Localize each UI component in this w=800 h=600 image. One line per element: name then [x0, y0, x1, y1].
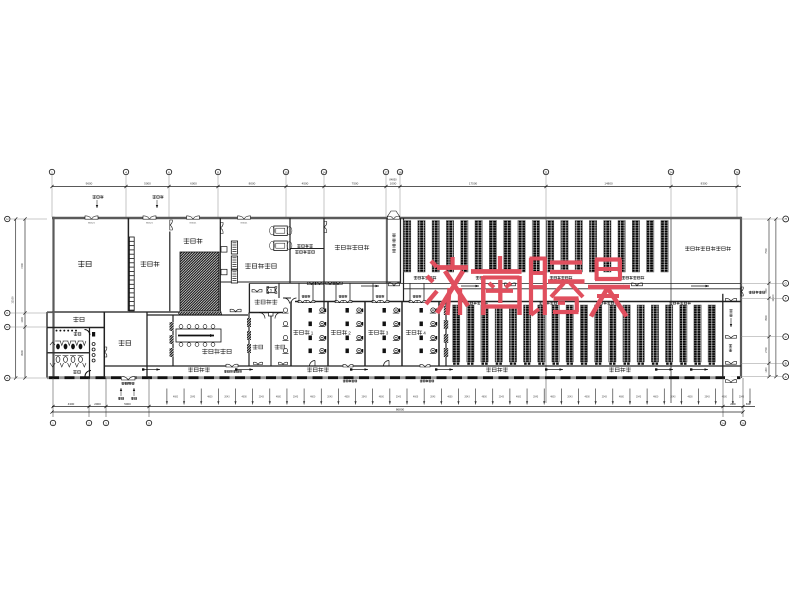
svg-text:9600: 9600 [86, 181, 93, 185]
svg-text:K: K [6, 311, 8, 315]
svg-text:4600: 4600 [379, 396, 385, 398]
svg-text:14800: 14800 [604, 181, 613, 185]
svg-text:26: 26 [735, 170, 739, 174]
svg-text:M1521: M1521 [146, 222, 153, 224]
svg-text:6000: 6000 [190, 181, 197, 185]
svg-text:2043: 2043 [327, 396, 333, 398]
svg-text:A: A [6, 376, 8, 380]
svg-text:86800: 86800 [396, 407, 405, 411]
svg-text:2043: 2043 [396, 396, 402, 398]
svg-text:2043: 2043 [362, 396, 368, 398]
svg-text:2: 2 [348, 330, 351, 335]
svg-text:H: H [785, 217, 787, 221]
svg-text:5000: 5000 [124, 402, 131, 406]
svg-text:2043: 2043 [636, 396, 642, 398]
svg-text:2043: 2043 [602, 396, 608, 398]
svg-text:17500: 17500 [469, 181, 478, 185]
svg-text:4600: 4600 [653, 396, 659, 398]
svg-text:4600: 4600 [482, 396, 488, 398]
svg-text:1400: 1400 [766, 367, 768, 373]
svg-text:4600: 4600 [585, 396, 591, 398]
svg-text:1500: 1500 [766, 288, 768, 294]
svg-text:2043: 2043 [670, 396, 676, 398]
svg-text:H: H [6, 217, 8, 221]
svg-text:4600: 4600 [687, 396, 693, 398]
svg-text:2700: 2700 [765, 347, 768, 353]
svg-text:2043: 2043 [430, 396, 436, 398]
svg-text:2000: 2000 [94, 402, 101, 406]
svg-text:2043: 2043 [464, 396, 470, 398]
svg-text:4: 4 [423, 330, 426, 335]
svg-text:2043: 2043 [567, 396, 573, 398]
svg-text:1000: 1000 [390, 181, 397, 185]
svg-text:F: F [785, 297, 787, 301]
svg-text:4600: 4600 [413, 396, 419, 398]
svg-text:4600: 4600 [173, 396, 179, 398]
svg-text:24: 24 [721, 421, 725, 425]
svg-text:2043: 2043 [224, 396, 230, 398]
svg-text:4600: 4600 [344, 396, 350, 398]
svg-text:2043: 2043 [705, 396, 711, 398]
svg-text:26: 26 [741, 421, 745, 425]
svg-text:4600: 4600 [516, 396, 522, 398]
svg-text:4600: 4600 [722, 396, 728, 398]
svg-text:24: 24 [669, 170, 673, 174]
svg-text:B: B [785, 362, 787, 366]
svg-text:4600: 4600 [276, 396, 282, 398]
svg-text:1: 1 [311, 330, 314, 335]
svg-text:4600: 4600 [619, 396, 625, 398]
svg-text:18: 18 [398, 170, 402, 174]
svg-text:2000: 2000 [730, 403, 736, 406]
svg-text:7200: 7200 [20, 263, 24, 269]
svg-text:84850: 84850 [389, 178, 397, 182]
svg-text:2043: 2043 [259, 396, 265, 398]
svg-text:M1521: M1521 [190, 222, 197, 224]
svg-text:5000: 5000 [144, 181, 151, 185]
svg-text:10: 10 [284, 170, 288, 174]
svg-text:14: 14 [322, 170, 326, 174]
svg-text:2043: 2043 [739, 396, 745, 398]
svg-text:3900: 3900 [20, 350, 24, 356]
svg-text:4600: 4600 [207, 396, 213, 398]
svg-text:8000: 8000 [249, 181, 256, 185]
svg-text:M1521: M1521 [241, 222, 248, 224]
svg-text:2043: 2043 [499, 396, 505, 398]
svg-text:1000: 1000 [21, 317, 24, 323]
svg-text:4300: 4300 [68, 402, 75, 406]
svg-text:7500: 7500 [352, 181, 359, 185]
svg-text:12100: 12100 [772, 294, 775, 302]
svg-text:M1521: M1521 [88, 222, 95, 224]
svg-text:4600: 4600 [310, 396, 316, 398]
svg-text:2043: 2043 [190, 396, 196, 398]
svg-text:4600: 4600 [550, 396, 556, 398]
svg-text:21: 21 [544, 170, 548, 174]
svg-text:2043: 2043 [293, 396, 299, 398]
svg-text:3900: 3900 [765, 315, 768, 321]
svg-text:4600: 4600 [242, 396, 248, 398]
svg-text:12100: 12100 [11, 296, 15, 304]
svg-text:5: 5 [270, 289, 272, 293]
svg-text:4500: 4500 [302, 181, 309, 185]
svg-text:8300: 8300 [701, 181, 708, 185]
svg-text:17: 17 [384, 170, 388, 174]
svg-text:4600: 4600 [447, 396, 453, 398]
svg-text:2043: 2043 [533, 396, 539, 398]
svg-text:3: 3 [386, 330, 389, 335]
svg-text:7500: 7500 [765, 248, 768, 254]
